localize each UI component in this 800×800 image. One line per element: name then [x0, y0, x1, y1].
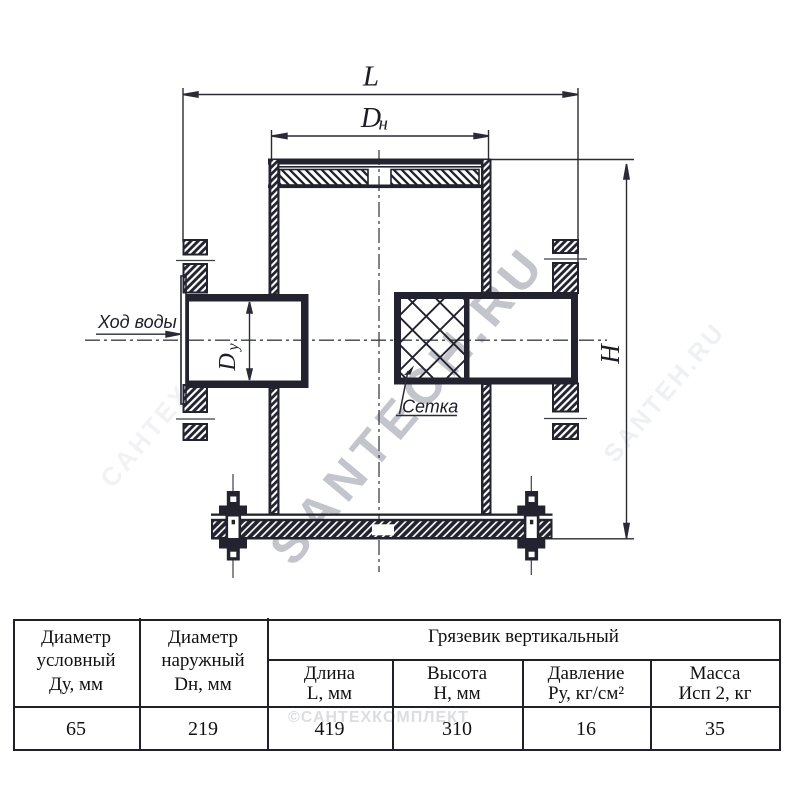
svg-text:Ход воды: Ход воды [97, 312, 177, 332]
svg-text:н: н [379, 114, 388, 135]
svg-text:H: H [595, 343, 625, 365]
svg-text:Сетка: Сетка [402, 397, 458, 417]
svg-text:L: L [362, 61, 379, 93]
svg-text:у: у [225, 343, 242, 353]
svg-text:D: D [215, 353, 241, 371]
